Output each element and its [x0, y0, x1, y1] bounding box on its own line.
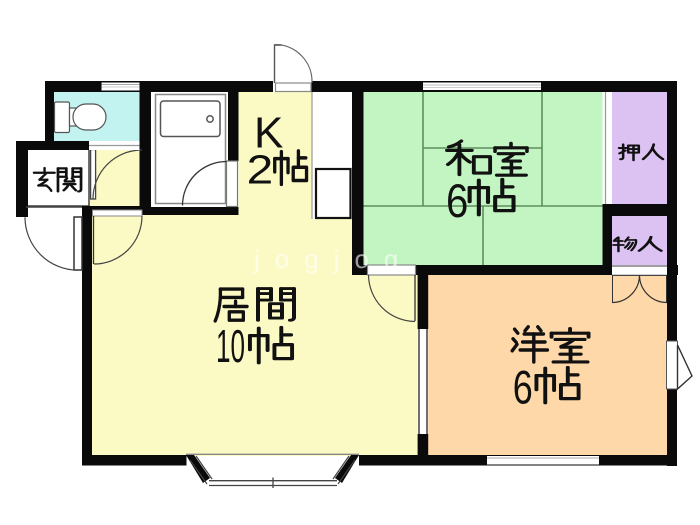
svg-text:6: 6	[513, 361, 533, 414]
svg-text:10: 10	[216, 320, 245, 372]
svg-text:jogjog: jogjog	[253, 244, 413, 274]
svg-text:2: 2	[247, 146, 274, 192]
svg-text:6: 6	[446, 174, 468, 227]
